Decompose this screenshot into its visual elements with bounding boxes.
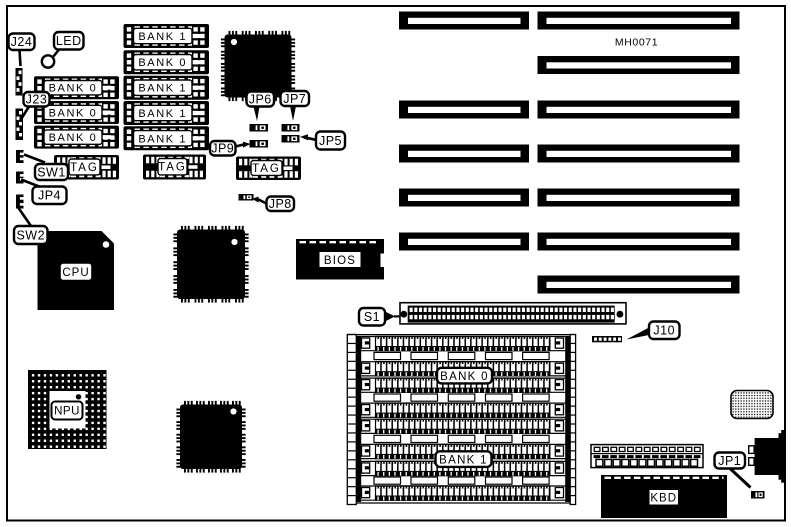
svg-text:JP8: JP8 xyxy=(269,197,292,211)
svg-text:S1: S1 xyxy=(364,310,380,324)
svg-text:JP4: JP4 xyxy=(38,189,61,203)
svg-text:TAG: TAG xyxy=(70,162,99,174)
svg-text:J23: J23 xyxy=(26,93,48,107)
svg-text:BANK 1: BANK 1 xyxy=(138,31,187,43)
svg-text:CPU: CPU xyxy=(62,267,89,279)
svg-text:MH0071: MH0071 xyxy=(615,37,658,49)
svg-text:TAG: TAG xyxy=(252,163,281,175)
svg-text:BANK 1: BANK 1 xyxy=(138,83,187,95)
svg-text:NPU: NPU xyxy=(54,406,80,418)
svg-text:J24: J24 xyxy=(11,35,33,49)
svg-text:SW2: SW2 xyxy=(16,228,45,242)
svg-text:BANK 0: BANK 0 xyxy=(138,57,187,69)
svg-text:JP9: JP9 xyxy=(211,142,234,156)
svg-text:JP7: JP7 xyxy=(283,92,306,106)
svg-text:BANK 1: BANK 1 xyxy=(439,454,488,466)
svg-text:J10: J10 xyxy=(653,324,675,338)
svg-text:BIOS: BIOS xyxy=(324,255,356,267)
svg-text:BANK 0: BANK 0 xyxy=(49,83,98,95)
svg-text:BANK 0: BANK 0 xyxy=(49,108,98,120)
svg-text:JP6: JP6 xyxy=(249,92,272,106)
svg-text:SW1: SW1 xyxy=(37,165,66,179)
svg-text:BANK 1: BANK 1 xyxy=(138,108,187,120)
svg-text:BANK 0: BANK 0 xyxy=(440,371,489,383)
svg-text:JP5: JP5 xyxy=(319,134,342,148)
svg-text:BANK 0: BANK 0 xyxy=(49,132,98,144)
svg-text:JP1: JP1 xyxy=(718,454,741,468)
svg-text:KBD: KBD xyxy=(650,493,677,505)
svg-text:TAG: TAG xyxy=(158,162,187,174)
svg-text:LED: LED xyxy=(56,34,82,48)
svg-text:BANK 1: BANK 1 xyxy=(138,133,187,145)
